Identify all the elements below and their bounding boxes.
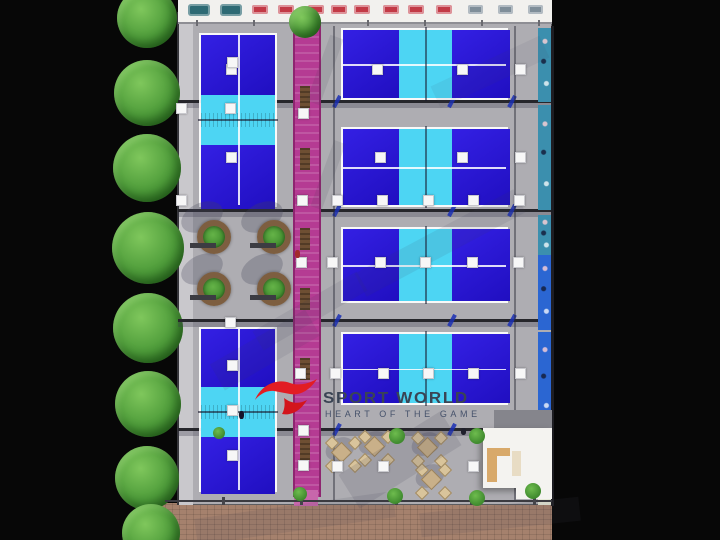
canopy-post [253, 20, 255, 26]
ceiling-light [468, 195, 479, 206]
ceiling-light [330, 368, 341, 379]
person-figure [461, 428, 466, 435]
ceiling-light [468, 368, 479, 379]
ceiling-light [296, 257, 307, 268]
tree [114, 60, 180, 126]
walkway-bench [300, 228, 310, 250]
ceiling-light [457, 152, 468, 163]
canopy-table-red [436, 5, 452, 14]
ceiling-light [378, 461, 389, 472]
logo-title: SPORT WORLD [323, 390, 469, 408]
ceiling-light [423, 368, 434, 379]
ceiling-light [297, 195, 308, 206]
planter [197, 220, 231, 254]
ceiling-light [298, 460, 309, 471]
canopy-sofa [188, 4, 210, 16]
canopy-post [367, 20, 369, 26]
bush [387, 488, 403, 504]
court-left-top [199, 33, 277, 207]
mural-panel [538, 215, 552, 255]
ceiling-light [298, 425, 309, 436]
planter-bench [190, 295, 216, 300]
canopy-post [481, 20, 483, 26]
person-figure [239, 411, 244, 419]
canopy-sofa [220, 4, 242, 16]
tree [115, 371, 181, 437]
bush [469, 428, 485, 444]
ceiling-light [372, 64, 383, 75]
canopy-table-gray [528, 5, 543, 14]
ceiling-light [176, 103, 187, 114]
planter [197, 272, 231, 306]
tree [113, 134, 181, 202]
canopy-table-red [331, 5, 347, 14]
ceiling-light [377, 195, 388, 206]
ceiling-light [515, 64, 526, 75]
ceiling-light [514, 195, 525, 206]
ceiling-light [375, 257, 386, 268]
walkway-tree [289, 6, 321, 38]
logo-tagline: HEART OF THE GAME [325, 409, 481, 419]
ceiling-light [467, 257, 478, 268]
ceiling-light [513, 257, 524, 268]
ceiling-light [227, 57, 238, 68]
court-net [425, 27, 427, 101]
bush [213, 427, 225, 439]
planter-bench [190, 243, 216, 248]
ceiling-light [225, 317, 236, 328]
boundary-post [222, 497, 225, 505]
ceiling-light [327, 257, 338, 268]
mural-panel [538, 105, 552, 210]
bush [469, 490, 485, 506]
reception-counter [487, 448, 510, 456]
canopy-table-red [408, 5, 424, 14]
ceiling-light [423, 195, 434, 206]
canopy-table-gray [468, 5, 483, 14]
ceiling-light [225, 103, 236, 114]
tree [113, 293, 183, 363]
planter [257, 220, 291, 254]
ceiling-light [227, 405, 238, 416]
ceiling-light [375, 152, 386, 163]
reception-shelf [512, 451, 521, 476]
walkway-bench [300, 148, 310, 170]
tree [112, 212, 184, 284]
canopy-post [538, 20, 540, 26]
canopy-post [196, 20, 198, 26]
planter-bench [250, 295, 276, 300]
scene-layer [0, 0, 720, 540]
canopy-post [424, 20, 426, 26]
ceiling-light [332, 195, 343, 206]
canopy-table-red [383, 5, 399, 14]
walkway-bench [300, 438, 310, 460]
bush [525, 483, 541, 499]
mural-panel [538, 255, 552, 330]
aerial-render-viewport: SPORT WORLD HEART OF THE GAME [0, 0, 720, 540]
ceiling-light [176, 195, 187, 206]
ceiling-light [468, 461, 479, 472]
ceiling-light [226, 152, 237, 163]
ceiling-light [227, 360, 238, 371]
ceiling-light [420, 257, 431, 268]
court-net-mesh [201, 113, 275, 127]
ceiling-light [378, 368, 389, 379]
bush [389, 428, 405, 444]
person-figure [295, 250, 300, 258]
canopy-table-red [354, 5, 370, 14]
ceiling-light [515, 368, 526, 379]
bush [293, 487, 307, 501]
ceiling-light [332, 461, 343, 472]
canopy-table-gray [498, 5, 513, 14]
planter [257, 272, 291, 306]
ceiling-light [298, 108, 309, 119]
canopy-table-red [252, 5, 268, 14]
ceiling-light [457, 64, 468, 75]
ceiling-light [227, 450, 238, 461]
planter-bench [250, 243, 276, 248]
ceiling-light [515, 152, 526, 163]
sport-world-r-icon [254, 377, 318, 419]
